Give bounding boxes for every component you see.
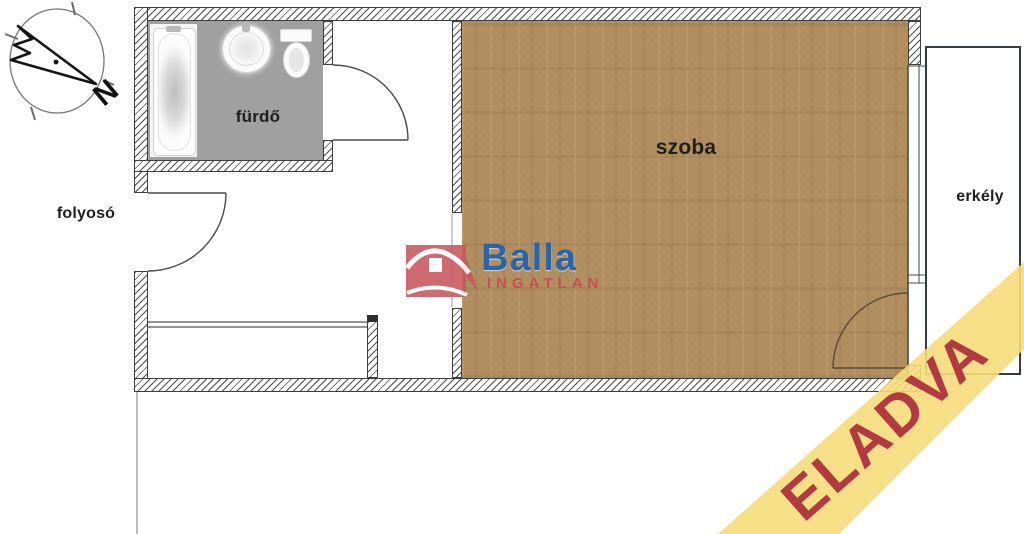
logo-subtitle-text: INGATLAN [487, 275, 603, 292]
north-needle [11, 26, 96, 84]
floorplan-canvas: N fürdő folyosó szoba erkély Balla INGAT… [0, 0, 1024, 534]
entry-door-swing-arc [148, 193, 226, 271]
label-balcony: erkély [956, 188, 1003, 206]
balcony-door-swing-arc [833, 293, 908, 368]
north-letter: N [87, 73, 125, 112]
compass-icon: N [2, 0, 127, 130]
logo-brand-text: Balla [481, 239, 577, 277]
logo-house-icon [405, 243, 479, 299]
window-jamb-ticks [908, 66, 925, 283]
closet-lines [148, 322, 367, 327]
label-corridor: folyosó [57, 205, 115, 223]
label-bathroom: fürdő [236, 107, 280, 127]
label-room: szoba [656, 136, 717, 160]
bathroom-door-swing-arc [333, 65, 408, 140]
